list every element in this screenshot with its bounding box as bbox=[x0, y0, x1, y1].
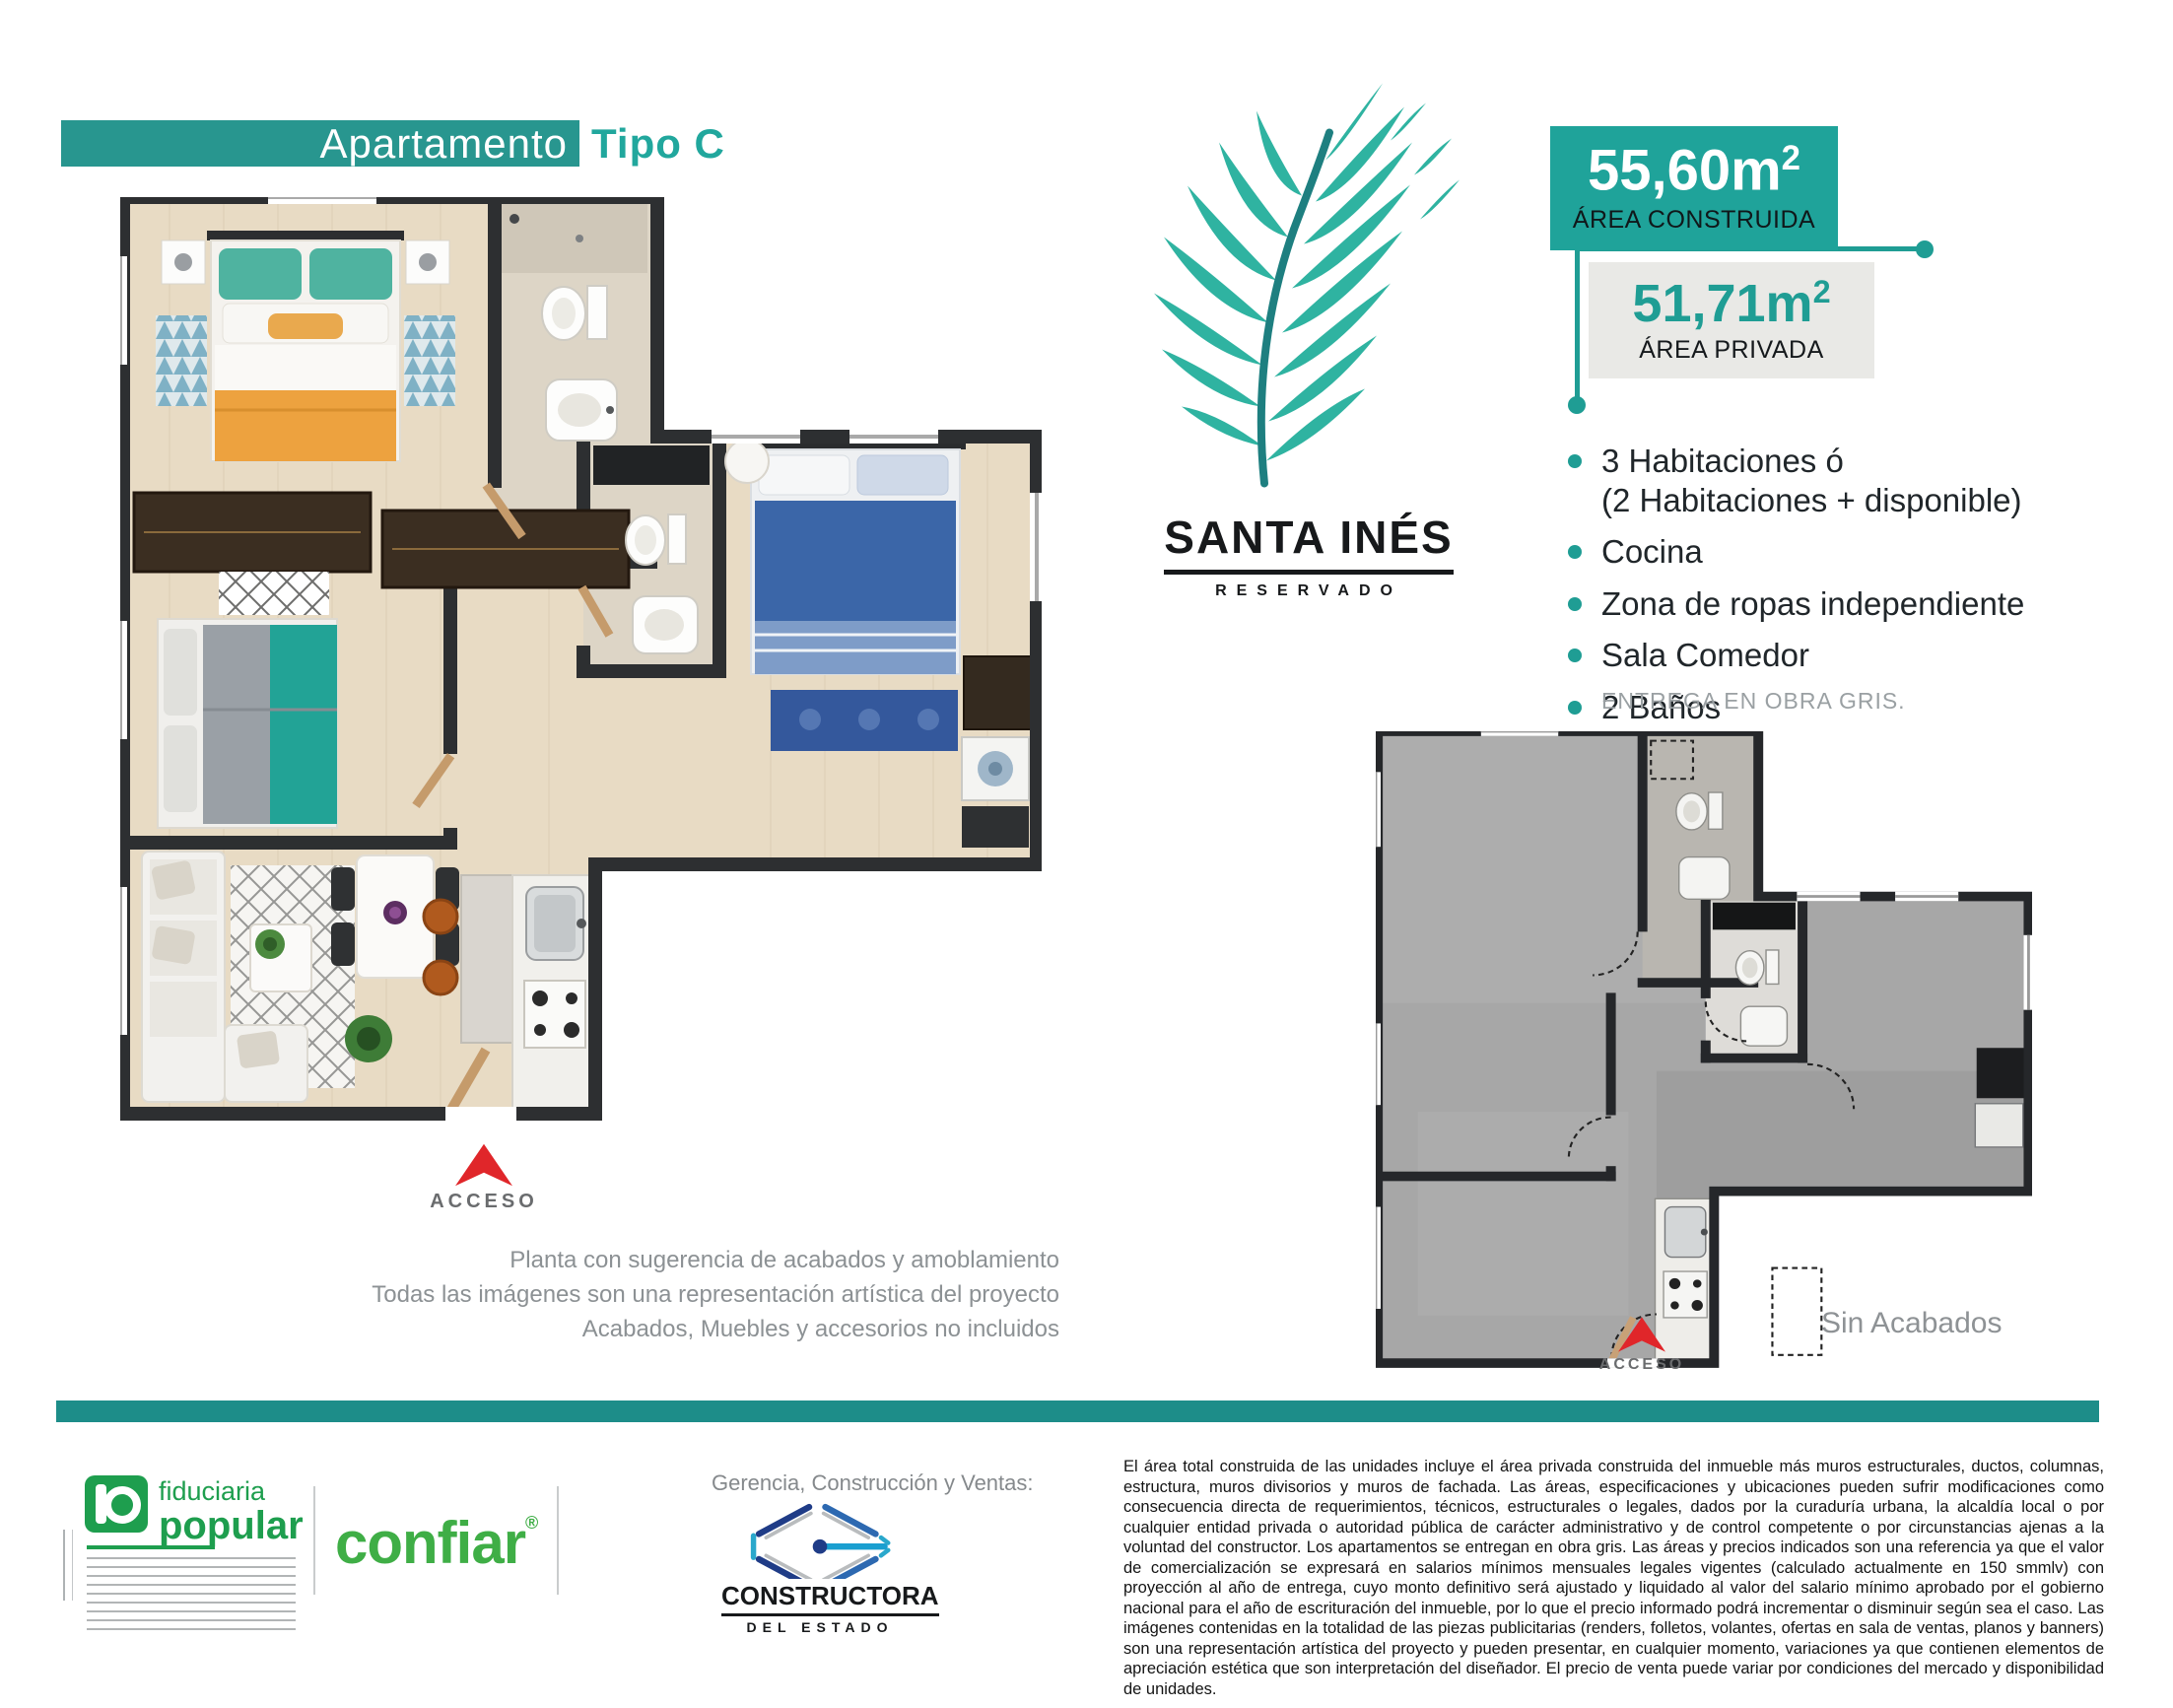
caption-line: Acabados, Muebles y accesorios no inclui… bbox=[370, 1313, 1059, 1347]
connector-dot bbox=[1568, 396, 1586, 414]
fiduciaria-mark-icon bbox=[84, 1474, 149, 1534]
footer-divider bbox=[557, 1486, 559, 1595]
caption-line: Planta con sugerencia de acabados y amob… bbox=[370, 1244, 1059, 1278]
plan-caption: Planta con sugerencia de acabados y amob… bbox=[370, 1244, 1059, 1346]
constructora-mark-icon bbox=[721, 1498, 918, 1579]
access-arrow-icon bbox=[455, 1143, 512, 1187]
connector-line bbox=[1575, 246, 1580, 402]
built-area-value: 55,60m2 bbox=[1588, 142, 1800, 199]
constructora-wordmark: CONSTRUCTORA DEL ESTADO bbox=[721, 1581, 918, 1635]
side-fine-print bbox=[63, 1530, 73, 1601]
registered-mark: ® bbox=[525, 1513, 537, 1533]
entry-opening bbox=[445, 1107, 516, 1121]
fiduciaria-popular-logo: fiduciaria popular bbox=[84, 1474, 310, 1546]
confiar-logo: confiar® bbox=[335, 1514, 537, 1573]
furnished-floor-plan bbox=[120, 197, 1042, 1124]
flyer-page: Apartamento Tipo C bbox=[0, 0, 2173, 1708]
laundry-zone bbox=[962, 656, 1033, 848]
feature-item: Zona de ropas independiente bbox=[1562, 584, 2153, 624]
master-bed bbox=[207, 231, 404, 461]
constructora-word: CONSTRUCTORA bbox=[721, 1581, 939, 1616]
footer-divider bbox=[313, 1486, 315, 1595]
unfinished-caption: Sin Acabados bbox=[1821, 1307, 2002, 1340]
private-area-badge: 51,71m2 ÁREA PRIVADA bbox=[1589, 262, 1874, 378]
feature-item: Cocina bbox=[1562, 532, 2153, 572]
bed-2 bbox=[158, 619, 337, 828]
page-subtitle: Tipo C bbox=[591, 120, 725, 167]
side-table bbox=[725, 440, 769, 483]
palm-leaf-icon bbox=[1119, 79, 1463, 488]
connector-dot bbox=[1916, 240, 1934, 258]
access-label: ACCESO bbox=[1583, 1356, 1701, 1374]
private-area-value: 51,71m2 bbox=[1632, 276, 1830, 330]
fine-print-block bbox=[87, 1557, 296, 1632]
bedside-rug bbox=[404, 315, 455, 406]
project-logo: SANTA INÉS RESERVADO bbox=[1141, 511, 1476, 600]
built-area-badge: 55,60m2 ÁREA CONSTRUIDA bbox=[1550, 126, 1838, 250]
page-title: Apartamento bbox=[320, 120, 568, 168]
feature-item: 3 Habitaciones ó (2 Habitaciones + dispo… bbox=[1562, 442, 2153, 519]
built-area-label: ÁREA CONSTRUIDA bbox=[1573, 206, 1815, 235]
fiduciaria-word: fiduciaria bbox=[159, 1478, 304, 1505]
bed-3 bbox=[747, 440, 966, 674]
project-tagline: RESERVADO bbox=[1141, 582, 1476, 600]
page-title-bar: Apartamento bbox=[61, 120, 579, 167]
access-label: ACCESO bbox=[422, 1191, 546, 1213]
project-name: SANTA INÉS bbox=[1164, 511, 1453, 575]
caption-line: Todas las imágenes son una representació… bbox=[370, 1278, 1059, 1313]
access-arrow-icon bbox=[1618, 1317, 1665, 1352]
del-estado-word: DEL ESTADO bbox=[721, 1619, 918, 1635]
duct-niche bbox=[593, 445, 710, 485]
divider-bar bbox=[56, 1401, 2099, 1422]
popular-word: popular bbox=[159, 1505, 304, 1546]
unfinished-floor-plan bbox=[1376, 731, 2032, 1370]
bedside-rug bbox=[156, 315, 207, 406]
private-area-label: ÁREA PRIVADA bbox=[1639, 336, 1824, 365]
management-label: Gerencia, Construcción y Ventas: bbox=[712, 1470, 1034, 1496]
delivery-note: ENTREGA EN OBRA GRIS. bbox=[1601, 688, 1906, 715]
feature-item: Sala Comedor bbox=[1562, 636, 2153, 675]
legal-disclaimer: El área total construida de las unidades… bbox=[1123, 1457, 2104, 1699]
fine-print-heading bbox=[87, 1545, 215, 1549]
